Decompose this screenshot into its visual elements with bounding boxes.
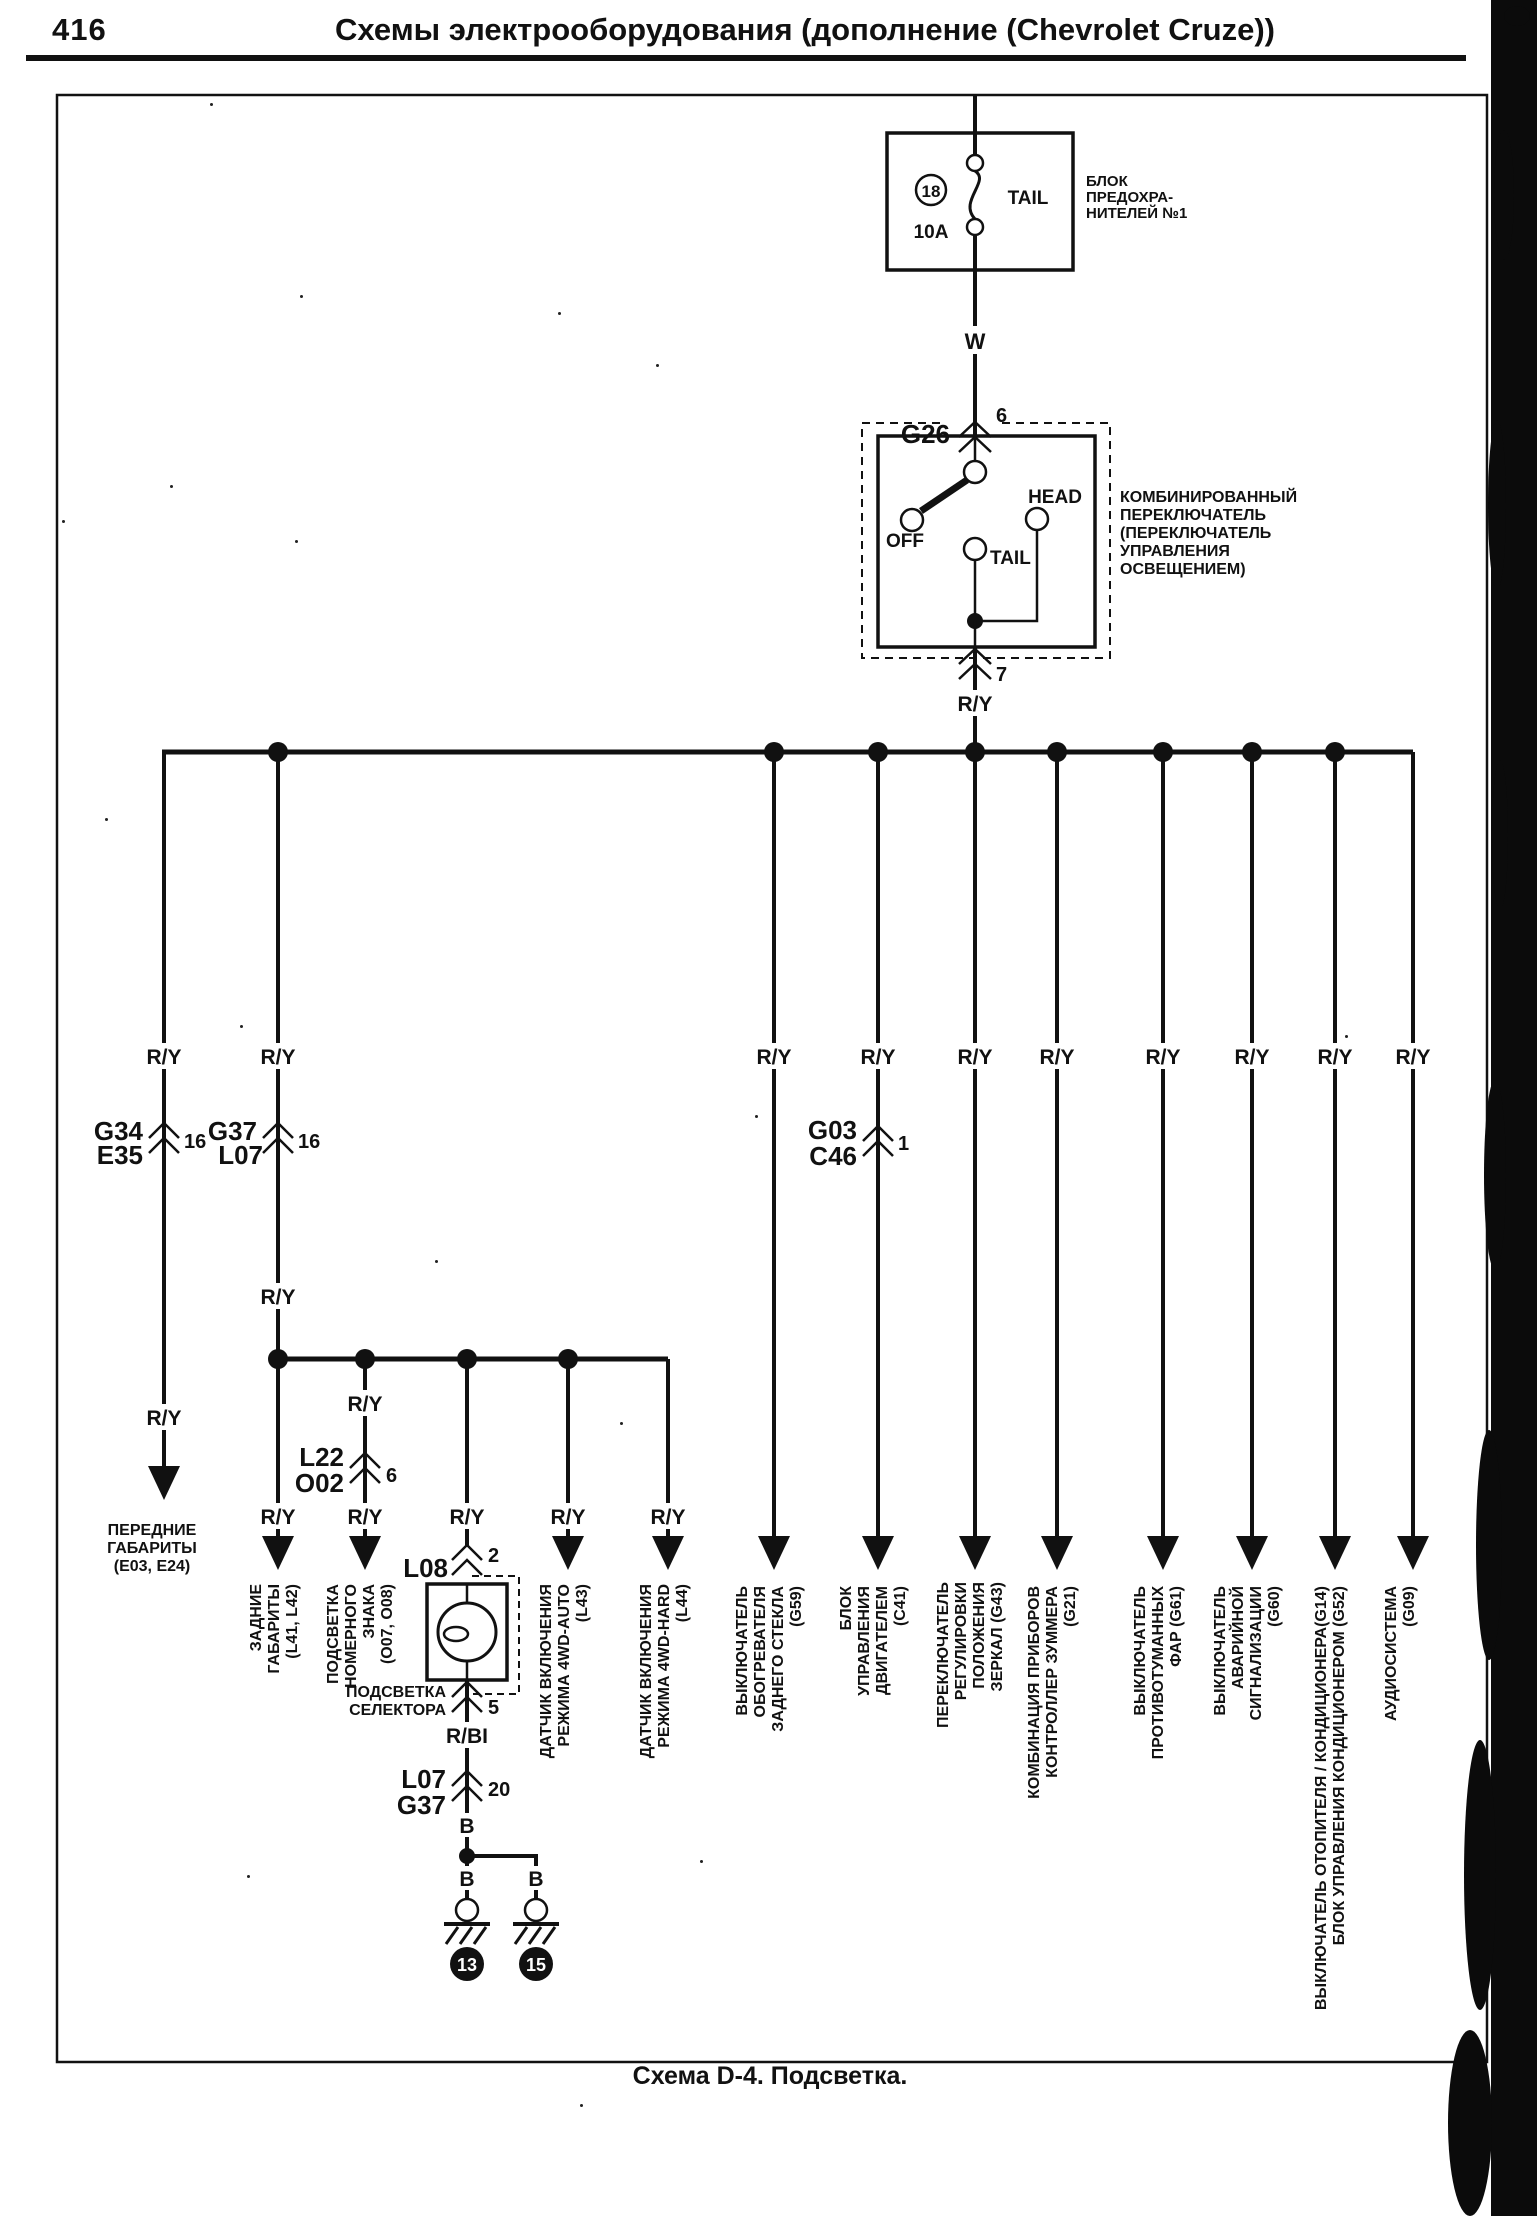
arrow-4wd-auto bbox=[552, 1536, 584, 1570]
arrow-4wd-hard bbox=[652, 1536, 684, 1570]
wire-color-w: W bbox=[965, 329, 986, 354]
bus-junction-dot bbox=[268, 1349, 288, 1369]
arrow-license-plate bbox=[349, 1536, 381, 1570]
scan-artifact bbox=[105, 818, 108, 821]
label-line: РЕГУЛИРОВКИ bbox=[953, 1582, 970, 1700]
scan-artifact bbox=[1345, 1035, 1348, 1038]
arrow-instrument-cluster bbox=[1041, 1536, 1073, 1570]
destination-label-4wd-auto: ДАТЧИК ВКЛЮЧЕНИЯ РЕЖИМА 4WD-AUTO (L43) bbox=[538, 1584, 591, 1758]
connector-c46-name: C46 bbox=[809, 1141, 857, 1171]
destination-label-hvac: ВЫКЛЮЧАТЕЛЬ ОТОПИТЕЛЯ / КОНДИЦИОНЕРА(G14… bbox=[1313, 1586, 1348, 2010]
label-line: ГАБАРИТЫ bbox=[266, 1584, 283, 1674]
connector-l08-chevron bbox=[452, 1545, 482, 1560]
connector-l08-chevron bbox=[452, 1560, 482, 1575]
scan-artifact bbox=[1504, 6, 1530, 26]
front-lights-label-line3: (E03, E24) bbox=[114, 1558, 190, 1575]
label-line: ЗЕРКАЛ (G43) bbox=[989, 1582, 1006, 1691]
destination-label-rear-defogger: ВЫКЛЮЧАТЕЛЬ ОБОГРЕВАТЕЛЯ ЗАДНЕГО СТЕКЛА … bbox=[734, 1586, 805, 1732]
scanned-manual-page: 416 Схемы электрооборудования (дополнени… bbox=[0, 0, 1537, 2216]
wire-color-rbi: R/BI bbox=[446, 1725, 488, 1748]
label-line: ДАТЧИК ВКЛЮЧЕНИЯ bbox=[638, 1584, 655, 1758]
destination-label-rear-lights: ЗАДНИЕ ГАБАРИТЫ (L41, L42) bbox=[248, 1584, 301, 1674]
scan-artifact bbox=[558, 312, 561, 315]
arrow-mirror-switch bbox=[959, 1536, 991, 1570]
destination-label-fog-switch: ВЫКЛЮЧАТЕЛЬ ПРОТИВОТУМАННЫХ ФАР (G61) bbox=[1132, 1586, 1185, 1760]
scan-artifact bbox=[1488, 420, 1506, 590]
wiring-diagram: 18 10A TAIL БЛОК ПРЕДОХРА- НИТЕЛЕЙ №1 W … bbox=[0, 0, 1537, 2216]
label-line: ЗАДНЕГО СТЕКЛА bbox=[770, 1586, 787, 1732]
connector-pin5-number: 5 bbox=[488, 1697, 499, 1719]
switch-off-contact bbox=[901, 509, 923, 531]
arrow-engine-ecu bbox=[862, 1536, 894, 1570]
destination-label-mirror-switch: ПЕРЕКЛЮЧАТЕЛЬ РЕГУЛИРОВКИ ПОЛОЖЕНИЯ ЗЕРК… bbox=[935, 1582, 1006, 1728]
arrow-audio bbox=[1397, 1536, 1429, 1570]
connector-g34-pin: 16 bbox=[184, 1131, 206, 1153]
connector-l07-pin: 20 bbox=[488, 1779, 510, 1801]
scan-artifact bbox=[62, 520, 65, 523]
label-line: УПРАВЛЕНИЯ bbox=[856, 1586, 873, 1696]
scan-artifact bbox=[1448, 2030, 1492, 2216]
scan-artifact bbox=[656, 364, 659, 367]
wire-color-ry: R/Y bbox=[957, 693, 992, 716]
label-line: ВЫКЛЮЧАТЕЛЬ bbox=[1212, 1586, 1229, 1716]
connector-l08-pin: 2 bbox=[488, 1545, 499, 1567]
scan-artifact bbox=[1484, 1080, 1506, 1270]
destination-label-license-plate: ПОДСВЕТКА НОМЕРНОГО ЗНАКА (O07, O08) bbox=[325, 1584, 396, 1688]
label-line: ЗАДНИЕ bbox=[248, 1584, 265, 1652]
scan-artifact bbox=[435, 1260, 438, 1263]
label-line: (O07, O08) bbox=[379, 1584, 396, 1664]
scan-artifact bbox=[755, 1115, 758, 1118]
connector-g37b-name: G37 bbox=[397, 1790, 446, 1820]
fuse-box-label-line2: ПРЕДОХРА- bbox=[1086, 189, 1173, 206]
scan-artifact bbox=[1476, 1430, 1502, 1660]
scan-artifact bbox=[170, 485, 173, 488]
wire-color-ry: R/Y bbox=[1234, 1046, 1269, 1069]
switch-tail-contact bbox=[964, 538, 986, 560]
scan-artifact bbox=[300, 295, 303, 298]
connector-pin7-number: 7 bbox=[996, 664, 1007, 686]
wire-color-b: B bbox=[459, 1868, 474, 1891]
scan-artifact bbox=[1464, 1740, 1496, 2010]
switch-label-line5: ОСВЕЩЕНИЕМ) bbox=[1120, 561, 1246, 578]
wire-color-ry: R/Y bbox=[347, 1506, 382, 1529]
ground-id: 13 bbox=[457, 1955, 477, 1975]
wire-color-b: B bbox=[528, 1868, 543, 1891]
fuse-box-label-line1: БЛОК bbox=[1086, 173, 1129, 190]
wire-color-ry: R/Y bbox=[449, 1506, 484, 1529]
fuse-box-label-line3: НИТЕЛЕЙ №1 bbox=[1086, 204, 1187, 222]
wire-color-ry: R/Y bbox=[1317, 1046, 1352, 1069]
label-line: КОНТРОЛЛЕР ЗУММЕРА bbox=[1044, 1586, 1061, 1778]
label-line: КОМБИНАЦИЯ ПРИБОРОВ bbox=[1026, 1586, 1043, 1799]
label-line: ДВИГАТЕЛЕМ bbox=[874, 1586, 891, 1695]
ground-symbol-15: 15 bbox=[513, 1899, 559, 1981]
fuse-element bbox=[970, 171, 980, 219]
label-line: АВАРИЙНОЙ bbox=[1228, 1586, 1247, 1689]
switch-head-wire bbox=[981, 530, 1037, 621]
arrow-hazard-switch bbox=[1236, 1536, 1268, 1570]
fuse-number: 18 bbox=[922, 182, 941, 201]
connector-g37-pin: 16 bbox=[298, 1131, 320, 1153]
switch-label-line1: КОМБИНИРОВАННЫЙ bbox=[1120, 487, 1297, 506]
scan-artifact bbox=[700, 1860, 703, 1863]
wire-color-ry: R/Y bbox=[260, 1506, 295, 1529]
connector-g03-pin: 1 bbox=[898, 1133, 909, 1155]
arrow-hvac bbox=[1319, 1536, 1351, 1570]
switch-off-label: OFF bbox=[886, 531, 924, 552]
label-line: РЕЖИМА 4WD-HARD bbox=[656, 1584, 673, 1748]
fuse-terminal-top bbox=[967, 155, 983, 171]
destination-label-hazard-switch: ВЫКЛЮЧАТЕЛЬ АВАРИЙНОЙ СИГНАЛИЗАЦИИ (G60) bbox=[1212, 1586, 1283, 1720]
label-line: ДАТЧИК ВКЛЮЧЕНИЯ bbox=[538, 1584, 555, 1758]
connector-o02-name: O02 bbox=[295, 1468, 344, 1498]
label-line: ВЫКЛЮЧАТЕЛЬ ОТОПИТЕЛЯ / КОНДИЦИОНЕРА(G14… bbox=[1313, 1586, 1330, 2010]
scan-artifact bbox=[1492, 760, 1508, 910]
switch-head-label: HEAD bbox=[1028, 487, 1082, 508]
wire-color-row: R/Y R/Y R/Y R/Y R/Y R/Y R/Y R/Y R/Y R/Y bbox=[137, 1043, 1440, 1069]
ground-symbol-13: 13 bbox=[444, 1899, 490, 1981]
wire-color-ry: R/Y bbox=[1039, 1046, 1074, 1069]
label-line: АУДИОСИСТЕМА bbox=[1383, 1586, 1400, 1721]
label-line: ВЫКЛЮЧАТЕЛЬ bbox=[734, 1586, 751, 1716]
switch-label-line3: (ПЕРЕКЛЮЧАТЕЛЬ bbox=[1120, 525, 1271, 542]
switch-label-line4: УПРАВЛЕНИЯ bbox=[1120, 543, 1230, 560]
wire-color-ry: R/Y bbox=[650, 1506, 685, 1529]
label-line: ЗНАКА bbox=[361, 1584, 378, 1639]
scan-artifact bbox=[1494, 130, 1514, 260]
label-line: ВЫКЛЮЧАТЕЛЬ bbox=[1132, 1586, 1149, 1716]
label-line: (L43) bbox=[574, 1584, 591, 1622]
destination-label-4wd-hard: ДАТЧИК ВКЛЮЧЕНИЯ РЕЖИМА 4WD-HARD (L44) bbox=[638, 1584, 691, 1758]
scan-artifact bbox=[247, 1875, 250, 1878]
label-line: БЛОК bbox=[838, 1586, 855, 1631]
front-lights-label-line2: ГАБАРИТЫ bbox=[107, 1540, 197, 1557]
label-line: НОМЕРНОГО bbox=[343, 1584, 360, 1688]
scan-artifact bbox=[210, 103, 213, 106]
label-line: (G60) bbox=[1266, 1586, 1283, 1627]
label-line: РЕЖИМА 4WD-AUTO bbox=[556, 1584, 573, 1747]
connector-l22-pin: 6 bbox=[386, 1465, 397, 1487]
wire-color-row: R/Y R/Y R/Y R/Y R/Y bbox=[251, 1503, 695, 1529]
switch-common-contact bbox=[964, 461, 986, 483]
switch-arm bbox=[921, 480, 967, 511]
wire-color-ry: R/Y bbox=[347, 1393, 382, 1416]
label-line: ПЕРЕКЛЮЧАТЕЛЬ bbox=[935, 1582, 952, 1728]
label-line: ОБОГРЕВАТЕЛЯ bbox=[752, 1586, 769, 1718]
label-line: (L44) bbox=[674, 1584, 691, 1622]
wire-color-ry: R/Y bbox=[146, 1046, 181, 1069]
destination-label-instrument-cluster: КОМБИНАЦИЯ ПРИБОРОВ КОНТРОЛЛЕР ЗУММЕРА (… bbox=[1026, 1586, 1079, 1799]
switch-label-line2: ПЕРЕКЛЮЧАТЕЛЬ bbox=[1120, 507, 1266, 524]
label-line: (L41, L42) bbox=[284, 1584, 301, 1659]
scan-artifact bbox=[295, 540, 298, 543]
bulb-filament-icon bbox=[444, 1627, 468, 1641]
wire-color-ry: R/Y bbox=[260, 1046, 295, 1069]
fuse-rating: 10A bbox=[914, 222, 949, 243]
scan-artifact bbox=[620, 1422, 623, 1425]
wire-color-ry: R/Y bbox=[756, 1046, 791, 1069]
switch-tail-label: TAIL bbox=[990, 548, 1031, 569]
wire-color-ry: R/Y bbox=[957, 1046, 992, 1069]
wire-color-ry: R/Y bbox=[146, 1407, 181, 1430]
wire-color-ry: R/Y bbox=[260, 1286, 295, 1309]
diagram-caption: Схема D-4. Подсветка. bbox=[480, 2062, 1060, 2091]
arrow-front-lights bbox=[148, 1466, 180, 1500]
label-line: (G59) bbox=[788, 1586, 805, 1627]
arrow-fog-switch bbox=[1147, 1536, 1179, 1570]
selector-light-label-line2: СЕЛЕКТОРА bbox=[349, 1702, 446, 1719]
switch-head-contact bbox=[1026, 508, 1048, 530]
label-line: (G09) bbox=[1401, 1586, 1418, 1627]
label-line: СИГНАЛИЗАЦИИ bbox=[1248, 1586, 1265, 1720]
connector-l08-name: L08 bbox=[403, 1553, 448, 1583]
label-line: ПОЛОЖЕНИЯ bbox=[971, 1582, 988, 1689]
selector-light-label-line1: ПОДСВЕТКА bbox=[346, 1684, 446, 1701]
wire-color-ry: R/Y bbox=[1395, 1046, 1430, 1069]
wire-color-b: B bbox=[459, 1815, 474, 1838]
label-line: (C41) bbox=[892, 1586, 909, 1626]
arrow-rear-lights bbox=[262, 1536, 294, 1570]
ground-id: 15 bbox=[526, 1955, 546, 1975]
destination-label-audio: АУДИОСИСТЕМА (G09) bbox=[1383, 1586, 1418, 1721]
label-line: ФАР (G61) bbox=[1168, 1586, 1185, 1667]
scan-artifact bbox=[240, 1025, 243, 1028]
label-line: (G21) bbox=[1062, 1586, 1079, 1627]
label-line: БЛОК УПРАВЛЕНИЯ КОНДИЦИОНЕРОМ (G52) bbox=[1331, 1586, 1348, 1945]
label-line: ПРОТИВОТУМАННЫХ bbox=[1150, 1586, 1167, 1760]
wire-color-ry: R/Y bbox=[1145, 1046, 1180, 1069]
connector-l07-name: L07 bbox=[218, 1140, 263, 1170]
wire-color-ry: R/Y bbox=[860, 1046, 895, 1069]
destination-label-engine-ecu: БЛОК УПРАВЛЕНИЯ ДВИГАТЕЛЕМ (C41) bbox=[838, 1586, 909, 1696]
connector-e35-name: E35 bbox=[97, 1140, 143, 1170]
front-lights-label-line1: ПЕРЕДНИЕ bbox=[108, 1522, 197, 1539]
scan-artifact bbox=[580, 2104, 583, 2107]
arrow-rear-defogger bbox=[758, 1536, 790, 1570]
label-line: ПОДСВЕТКА bbox=[325, 1584, 342, 1684]
wire-color-ry: R/Y bbox=[550, 1506, 585, 1529]
fuse-circuit: TAIL bbox=[1008, 188, 1049, 209]
fuse-terminal-bottom bbox=[967, 219, 983, 235]
